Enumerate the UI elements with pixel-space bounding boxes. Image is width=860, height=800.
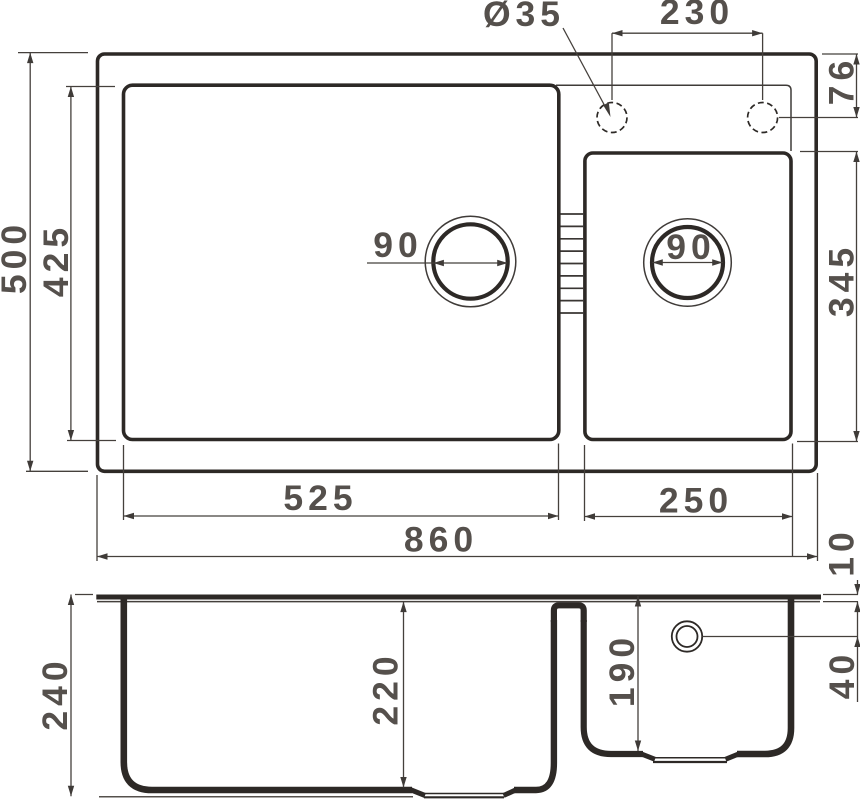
svg-text:220: 220 <box>366 651 406 725</box>
svg-text:10: 10 <box>822 527 860 577</box>
svg-text:90: 90 <box>373 225 423 265</box>
svg-text:76: 76 <box>822 56 860 106</box>
svg-text:525: 525 <box>283 478 357 518</box>
svg-text:425: 425 <box>36 223 76 297</box>
svg-text:500: 500 <box>0 220 34 294</box>
svg-text:860: 860 <box>404 520 478 560</box>
svg-text:190: 190 <box>602 633 642 707</box>
svg-text:250: 250 <box>659 481 733 521</box>
svg-text:Ø35: Ø35 <box>483 0 565 34</box>
svg-text:345: 345 <box>822 243 860 317</box>
svg-text:240: 240 <box>35 656 75 730</box>
svg-text:40: 40 <box>822 650 860 700</box>
svg-text:230: 230 <box>660 0 734 32</box>
svg-text:90: 90 <box>666 227 716 267</box>
